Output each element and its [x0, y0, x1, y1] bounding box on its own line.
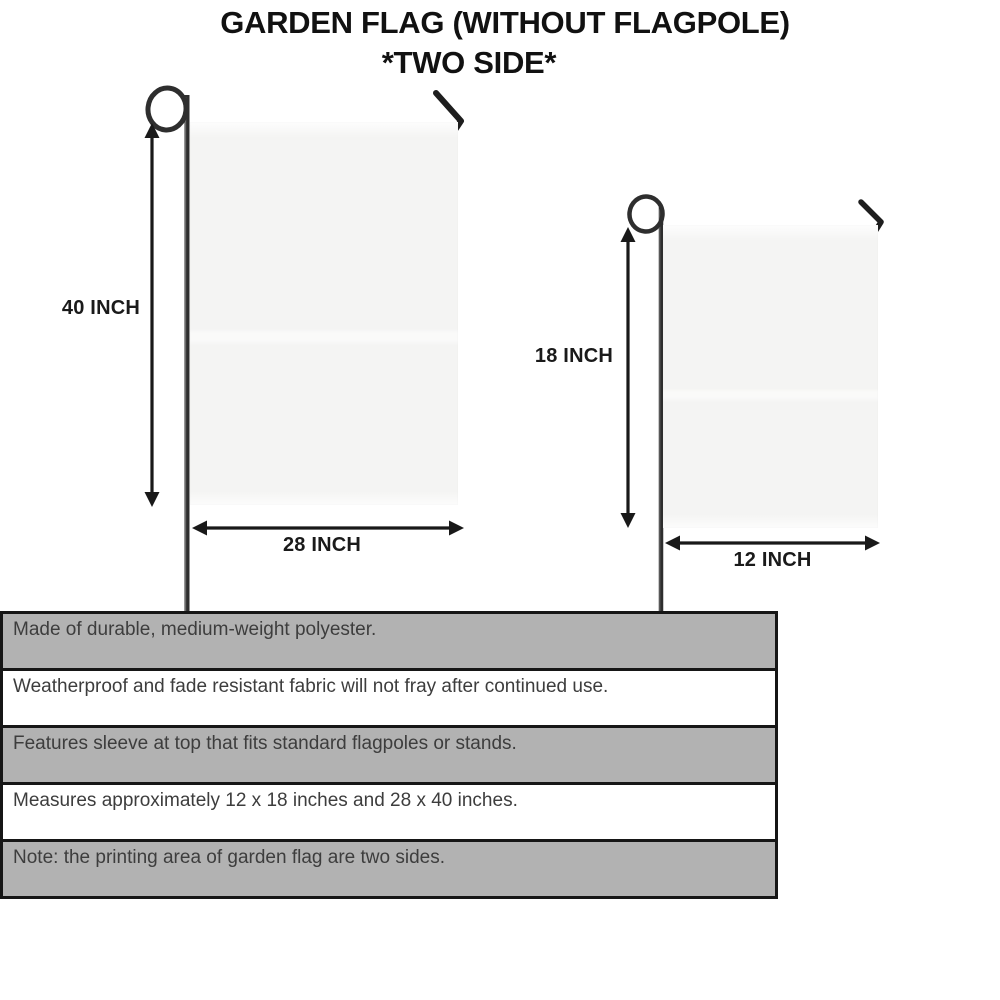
feature-row: Measures approximately 12 x 18 inches an… — [3, 785, 775, 842]
arrow-head-down-icon — [621, 513, 636, 528]
arrow-head-up-icon — [145, 123, 160, 138]
large-flag-width-label: 28 INCH — [192, 534, 452, 557]
small-height-arrow — [619, 227, 637, 528]
page-subtitle: *TWO SIDE* — [0, 45, 938, 81]
features-table: Made of durable, medium-weight polyester… — [0, 611, 778, 899]
feature-row: Features sleeve at top that fits standar… — [3, 728, 775, 785]
page-title: GARDEN FLAG (WITHOUT FLAGPOLE) — [10, 5, 1000, 41]
feature-row: Weatherproof and fade resistant fabric w… — [3, 671, 775, 728]
feature-row: Made of durable, medium-weight polyester… — [3, 614, 775, 671]
large-flag-canvas — [190, 122, 458, 505]
arrow-head-down-icon — [145, 492, 160, 507]
product-size-diagram: GARDEN FLAG (WITHOUT FLAGPOLE) *TWO SIDE… — [0, 0, 1000, 1000]
large-height-arrow — [143, 123, 161, 507]
small-flag-width-label: 12 INCH — [665, 549, 880, 572]
large-flag-height-label: 40 INCH — [55, 297, 140, 320]
arrow-head-up-icon — [621, 227, 636, 242]
feature-row: Note: the printing area of garden flag a… — [3, 842, 775, 896]
small-flag-canvas — [663, 225, 878, 528]
small-flag-height-label: 18 INCH — [528, 345, 613, 368]
